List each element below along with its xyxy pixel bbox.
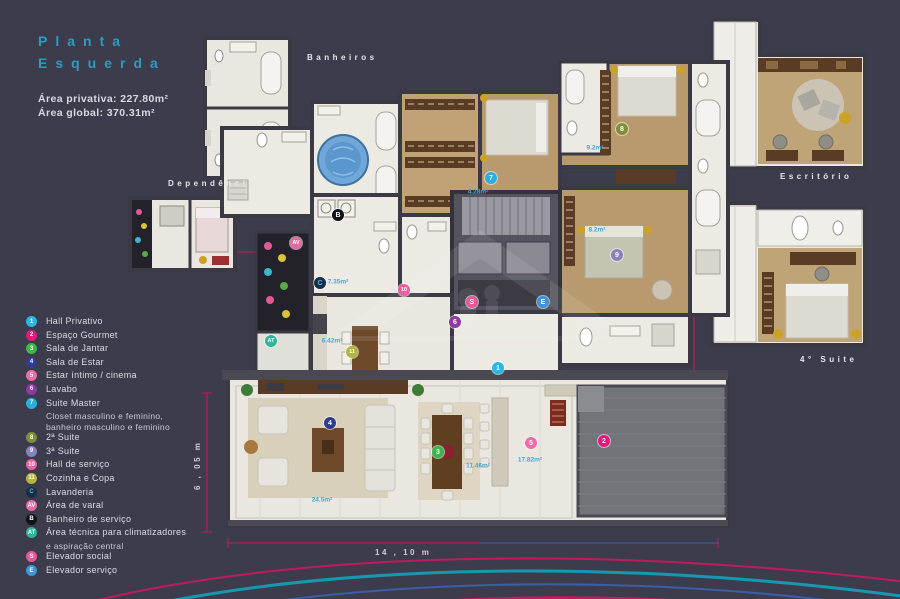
room-area-label: 4.28m²	[468, 189, 489, 196]
floor-plan-page: PlantaEsquerda Área privativa: 227.80m² …	[0, 0, 900, 599]
legend-item: SElevador social	[26, 551, 186, 562]
label-escritorio: Escritório	[780, 172, 852, 181]
room-marker: 10	[398, 284, 410, 296]
room-marker: 1	[492, 362, 504, 374]
suite2-dresser	[616, 170, 676, 184]
room-marker: 6	[449, 316, 461, 328]
legend-symbol: 2	[26, 330, 37, 341]
bar-counter	[492, 398, 508, 486]
legend-item: CLavanderia	[26, 487, 186, 498]
label-dependencia: Dependência	[168, 179, 256, 188]
room-marker: S	[466, 296, 478, 308]
title-line1: Planta	[38, 33, 128, 49]
legend-item: 93ª Suite	[26, 446, 186, 457]
legend-label: Banheiro de serviço	[46, 514, 131, 525]
living-top-wall	[222, 370, 728, 380]
legend: 1Hall Privativo2Espaço Gourmet3Sala de J…	[26, 316, 186, 579]
armchair	[258, 406, 288, 434]
legend-label: Sala de Jantar	[46, 343, 108, 354]
legend-label: Hall Privativo	[46, 316, 103, 327]
room-marker: B	[332, 209, 344, 221]
legend-symbol: AV	[26, 500, 37, 511]
legend-sublabel: banheiro masculino e feminino	[46, 422, 186, 433]
room-marker: 4	[324, 417, 336, 429]
room-area-label: 9.2m²	[587, 145, 604, 152]
legend-symbol: S	[26, 551, 37, 562]
legend-label: Sala de Estar	[46, 357, 104, 368]
legend-symbol: 5	[26, 370, 37, 381]
dimension-left: 6 , 05 m	[193, 441, 202, 490]
legend-item: 7Suite Master	[26, 398, 186, 409]
satellite-escritorio-plan	[712, 20, 865, 168]
legend-label: Estar íntimo / cinema	[46, 370, 137, 381]
legend-label: Lavabo	[46, 384, 77, 395]
legend-symbol: AT	[26, 527, 37, 538]
room-marker: 11	[346, 346, 358, 358]
legend-item: 5Estar íntimo / cinema	[26, 370, 186, 381]
legend-label: Elevador serviço	[46, 565, 117, 576]
legend-item: 6Lavabo	[26, 384, 186, 395]
legend-symbol: 9	[26, 446, 37, 457]
legend-item: 1Hall Privativo	[26, 316, 186, 327]
legend-label: 2ª Suite	[46, 432, 80, 443]
legend-symbol: E	[26, 565, 37, 576]
room-marker: AV	[290, 237, 302, 249]
label-banheiros: Banheiros	[307, 53, 378, 62]
legend-label: Área técnica para climatizadores	[46, 527, 186, 538]
room-marker: 8	[616, 123, 628, 135]
legend-item: EElevador serviço	[26, 565, 186, 576]
legend-symbol: 11	[26, 473, 37, 484]
legend-symbol: 4	[26, 357, 37, 368]
legend-sublabel: Closet masculino e feminino,	[46, 411, 186, 422]
legend-item: 4Sala de Estar	[26, 357, 186, 368]
title-line2: Esquerda	[38, 55, 166, 71]
room-marker: 7	[485, 172, 497, 184]
satellite-dependencia-plan	[130, 198, 235, 270]
legend-label: Área de varal	[46, 500, 103, 511]
room-marker: E	[537, 296, 549, 308]
legend-item: 11Cozinha e Copa	[26, 473, 186, 484]
legend-symbol: 10	[26, 459, 37, 470]
room-area-label: 17.82m²	[518, 457, 542, 464]
legend-symbol: 7	[26, 398, 37, 409]
room-marker: 2	[598, 435, 610, 447]
room-marker: AT	[265, 335, 277, 347]
satellite-suite4-plan	[712, 203, 865, 345]
legend-symbol: 3	[26, 343, 37, 354]
legend-label: 3ª Suite	[46, 446, 80, 457]
legend-item: ATÁrea técnica para climatizadores	[26, 527, 186, 538]
legend-sublabel: e aspiração central	[46, 541, 186, 552]
area-privativa: Área privativa: 227.80m²	[38, 92, 168, 106]
room-area-label: 24.5m²	[312, 497, 333, 504]
room-area-label: 7.35m²	[328, 279, 349, 286]
armchair	[258, 458, 288, 486]
legend-label: Cozinha e Copa	[46, 473, 115, 484]
legend-symbol: C	[26, 487, 37, 498]
legend-label: Espaço Gourmet	[46, 330, 118, 341]
page-title: PlantaEsquerda	[38, 30, 166, 74]
room-marker: C	[314, 277, 326, 289]
legend-symbol: 6	[26, 384, 37, 395]
dimension-bottom: 14 , 10 m	[375, 548, 431, 557]
legend-item: 82ª Suite	[26, 432, 186, 443]
room-area-label: 8.2m²	[589, 227, 606, 234]
staircase	[462, 197, 550, 235]
legend-label: Elevador social	[46, 551, 112, 562]
legend-item: 2Espaço Gourmet	[26, 330, 186, 341]
legend-label: Suite Master	[46, 398, 100, 409]
room-marker: 5	[525, 437, 537, 449]
legend-label: Hall de serviço	[46, 459, 110, 470]
legend-item: BBanheiro de serviço	[26, 514, 186, 525]
label-suite4: 4° Suite	[800, 355, 857, 364]
legend-label: Lavanderia	[46, 487, 94, 498]
area-global: Área global: 370.31m²	[38, 106, 168, 120]
legend-item: 10Hall de serviço	[26, 459, 186, 470]
legend-item: AVÁrea de varal	[26, 500, 186, 511]
legend-symbol: B	[26, 514, 37, 525]
area-summary: Área privativa: 227.80m² Área global: 37…	[38, 92, 168, 120]
vertical-garden	[256, 232, 310, 332]
sofa	[365, 405, 395, 491]
legend-symbol: 8	[26, 432, 37, 443]
room-marker: 3	[432, 446, 444, 458]
room-marker: 9	[611, 249, 623, 261]
room-area-label: 6.42m²	[322, 338, 343, 345]
legend-symbol: 1	[26, 316, 37, 327]
legend-item: 3Sala de Jantar	[26, 343, 186, 354]
room-area-label: 11.46m²	[466, 463, 490, 470]
